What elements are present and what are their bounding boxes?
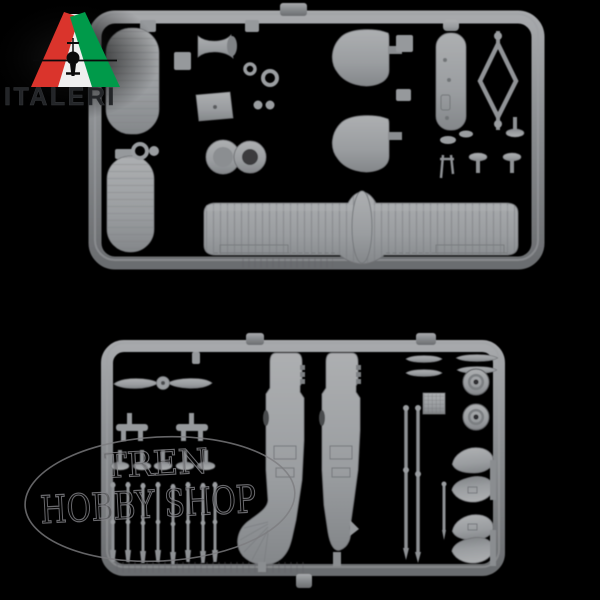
small-block xyxy=(245,20,259,32)
runner-tab xyxy=(280,3,307,16)
pilot-bulkhead xyxy=(196,92,233,121)
airfoil-bump xyxy=(440,136,456,144)
airfoil-bump xyxy=(459,131,473,138)
runner-tab xyxy=(246,333,264,345)
cylinder-part xyxy=(266,101,275,110)
lower-wing-panel xyxy=(107,149,154,252)
main-wheel xyxy=(463,369,489,395)
runner-tab xyxy=(296,574,312,588)
main-wheel xyxy=(463,404,489,430)
sprue-photo-canvas: ITALERI xyxy=(0,0,600,600)
small-block xyxy=(396,35,413,52)
small-block xyxy=(396,89,411,101)
runner-tab xyxy=(416,333,436,345)
fuselage-pod xyxy=(436,20,466,130)
radiator-panel xyxy=(423,393,445,414)
product-photo: ITALERI xyxy=(0,0,600,600)
cylinder-part xyxy=(254,101,263,110)
brand-wordmark: ITALERI xyxy=(4,83,117,111)
small-part xyxy=(192,352,200,364)
